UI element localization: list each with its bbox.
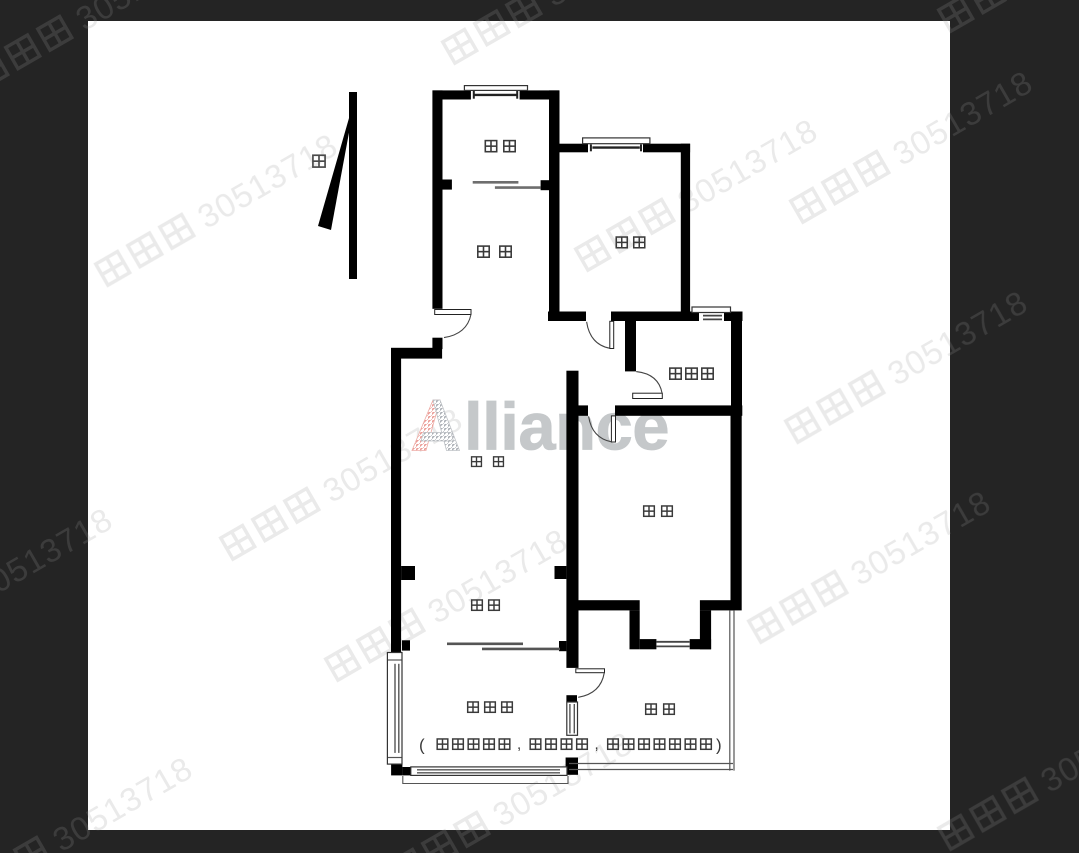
svg-text:,: ,	[595, 736, 599, 753]
svg-text:(: (	[419, 736, 425, 755]
svg-text:): )	[716, 736, 722, 755]
svg-text:,: ,	[517, 736, 521, 753]
